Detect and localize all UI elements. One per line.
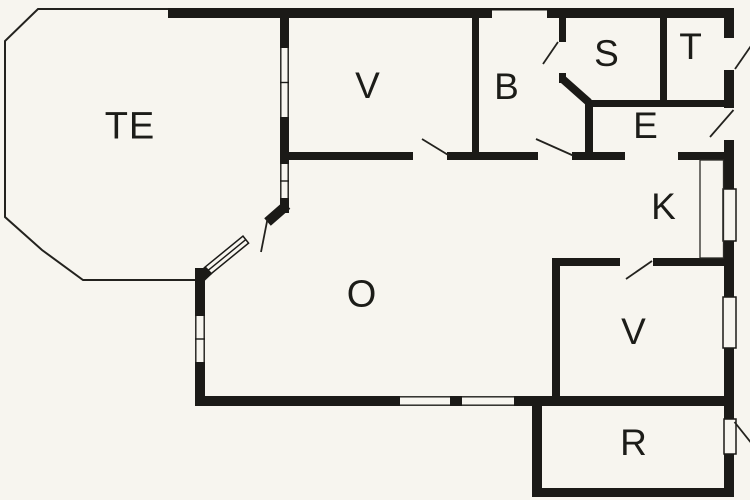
wall-o-left-1 [195, 268, 205, 316]
wall-right-5 [724, 347, 734, 420]
terrace-outline [5, 9, 196, 280]
window-o-bottom-1 [400, 396, 450, 406]
window-o-left [195, 316, 205, 362]
wall-vb-left [552, 258, 560, 398]
wall-top-left [168, 8, 492, 18]
wall-right-1 [724, 8, 734, 38]
room-label-o: O [347, 274, 378, 317]
room-label-s: S [594, 33, 620, 75]
wall-b-s-upper [559, 18, 566, 42]
wall-r-bottom [532, 488, 734, 497]
room-label-t: T [679, 26, 703, 68]
room-label-k: K [651, 186, 677, 228]
wall-bottom-2 [450, 396, 462, 406]
wall-r-left [532, 402, 542, 497]
wall-s-t [660, 18, 667, 104]
door-swing-entrance [710, 110, 734, 137]
wall-hall-2 [447, 152, 538, 160]
wall-upperleft-1 [280, 8, 289, 48]
wall-hall-4 [678, 152, 724, 160]
room-label-r: R [620, 422, 648, 464]
room-label-e: E [633, 105, 659, 147]
door-swing-v-top [422, 139, 449, 156]
wall-diagonal-upper [268, 205, 288, 222]
door-swing-terrace [261, 219, 268, 252]
wall-e-top [587, 100, 734, 107]
door-swing-v-bottom [626, 261, 652, 279]
wall-e-left [585, 100, 593, 156]
door-swing-s [543, 42, 558, 64]
wall-top-right [547, 8, 734, 18]
wall-hall-1 [287, 152, 413, 160]
floorplan-canvas: TE V B S T E K O V R [0, 0, 750, 500]
window-diagonal [204, 236, 248, 275]
room-label-b: B [494, 66, 520, 108]
door-swing-r [735, 422, 750, 444]
door-swing-t [735, 43, 750, 69]
wall-vb-top-1 [552, 258, 620, 266]
wall-right-3 [724, 140, 734, 190]
wall-bottom-3 [514, 396, 734, 406]
window-terrace-upper [280, 48, 289, 117]
room-label-te: TE [105, 106, 156, 149]
window-terrace-lower [280, 164, 289, 198]
window-kitchen [723, 189, 736, 241]
kitchen-counter [700, 160, 724, 258]
wall-hall-3 [572, 152, 625, 160]
window-bedroom-right [723, 297, 736, 348]
wall-v-b [472, 18, 479, 156]
room-label-v-top: V [355, 65, 381, 107]
wall-s-diagonal [563, 79, 590, 103]
wall-vb-top-2 [653, 258, 724, 266]
window-o-bottom-2 [462, 396, 514, 406]
door-swing-b [536, 139, 573, 156]
window-top [492, 8, 547, 18]
door-r-flap [724, 419, 736, 454]
room-label-v-bottom: V [621, 311, 647, 353]
wall-bottom-1 [195, 396, 400, 406]
wall-right-4 [724, 240, 734, 298]
